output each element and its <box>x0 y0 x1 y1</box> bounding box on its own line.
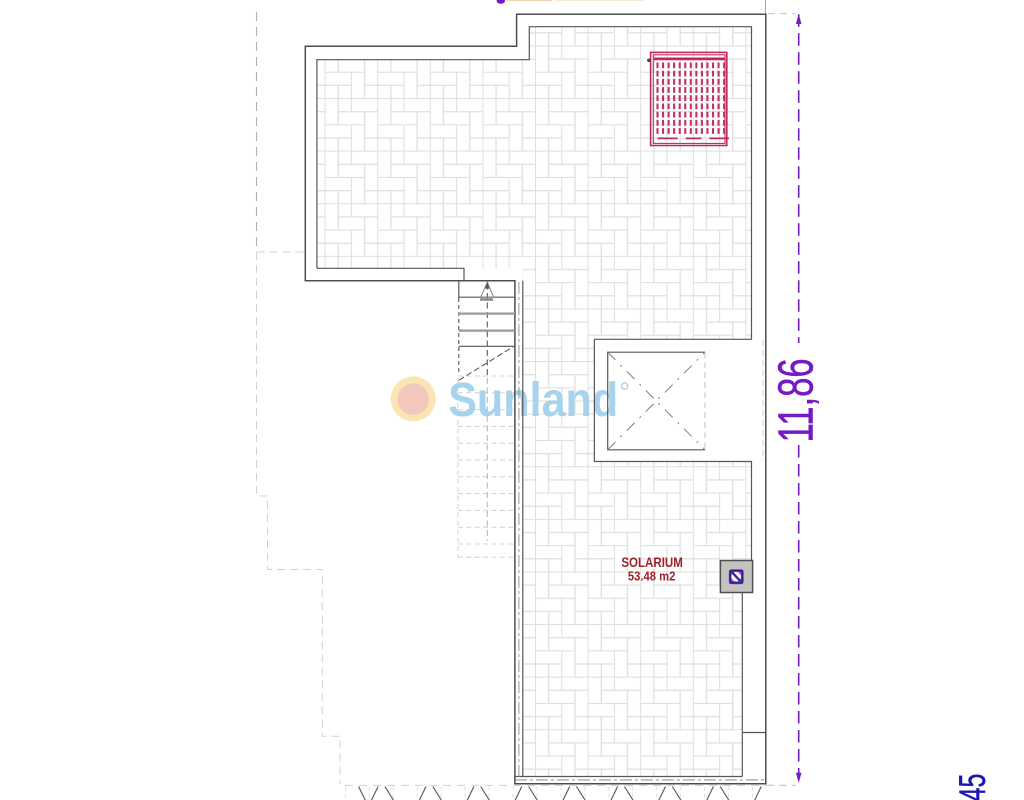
svg-text:SOLARIUM: SOLARIUM <box>621 555 683 570</box>
svg-text:45: 45 <box>952 774 993 800</box>
svg-text:11,86: 11,86 <box>770 358 824 442</box>
svg-text:53.48 m2: 53.48 m2 <box>628 569 676 584</box>
svg-text:Sunland: Sunland <box>448 374 618 427</box>
